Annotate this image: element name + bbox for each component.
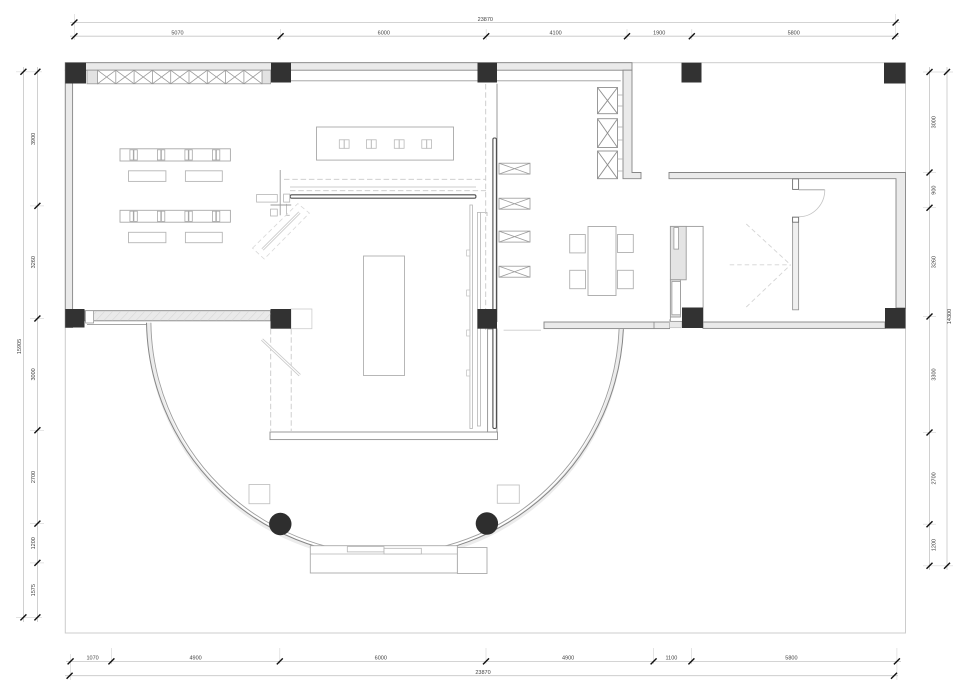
svg-text:4900: 4900 xyxy=(562,656,574,662)
svg-text:3300: 3300 xyxy=(932,368,938,380)
svg-text:3000: 3000 xyxy=(932,116,938,128)
svg-text:1200: 1200 xyxy=(932,539,938,551)
svg-text:23870: 23870 xyxy=(478,17,493,23)
svg-text:2700: 2700 xyxy=(31,471,37,483)
svg-text:4100: 4100 xyxy=(549,31,561,37)
svg-text:3000: 3000 xyxy=(31,368,37,380)
svg-text:3260: 3260 xyxy=(932,256,938,268)
svg-text:14300: 14300 xyxy=(947,309,953,324)
svg-text:23870: 23870 xyxy=(475,670,490,676)
svg-text:5800: 5800 xyxy=(785,656,797,662)
svg-text:6000: 6000 xyxy=(375,656,387,662)
svg-text:15905: 15905 xyxy=(17,339,23,354)
svg-text:5800: 5800 xyxy=(788,31,800,37)
svg-text:6000: 6000 xyxy=(378,31,390,37)
svg-text:2700: 2700 xyxy=(932,472,938,484)
svg-text:1900: 1900 xyxy=(653,31,665,37)
svg-text:1070: 1070 xyxy=(86,656,98,662)
svg-text:5070: 5070 xyxy=(171,31,183,37)
svg-text:3900: 3900 xyxy=(31,133,37,145)
svg-text:900: 900 xyxy=(932,186,938,195)
svg-text:1200: 1200 xyxy=(31,537,37,549)
svg-text:4900: 4900 xyxy=(189,656,201,662)
svg-text:1100: 1100 xyxy=(665,656,677,662)
svg-text:3260: 3260 xyxy=(31,256,37,268)
svg-text:1575: 1575 xyxy=(31,584,37,596)
